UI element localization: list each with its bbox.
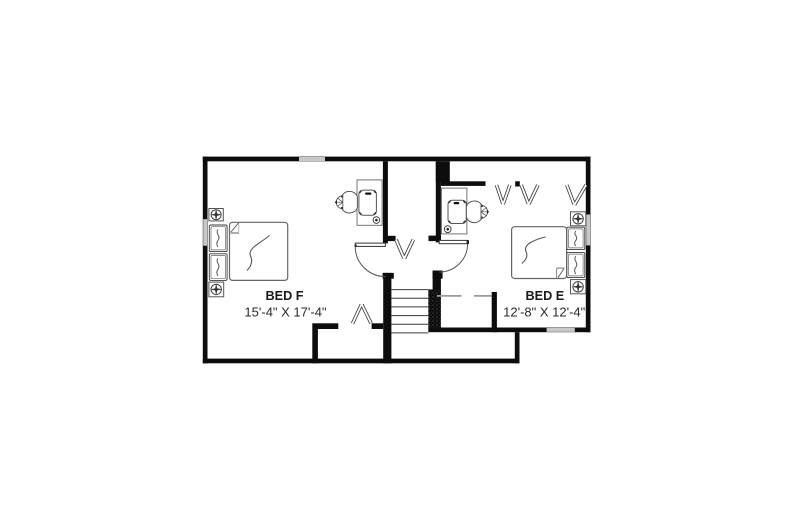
svg-text:15'-4" X 17'-4": 15'-4" X 17'-4" bbox=[244, 304, 327, 319]
svg-text:BED F: BED F bbox=[265, 289, 303, 303]
svg-text:12'-8" X 12'-4": 12'-8" X 12'-4" bbox=[503, 304, 586, 319]
svg-text:BED E: BED E bbox=[526, 289, 565, 303]
